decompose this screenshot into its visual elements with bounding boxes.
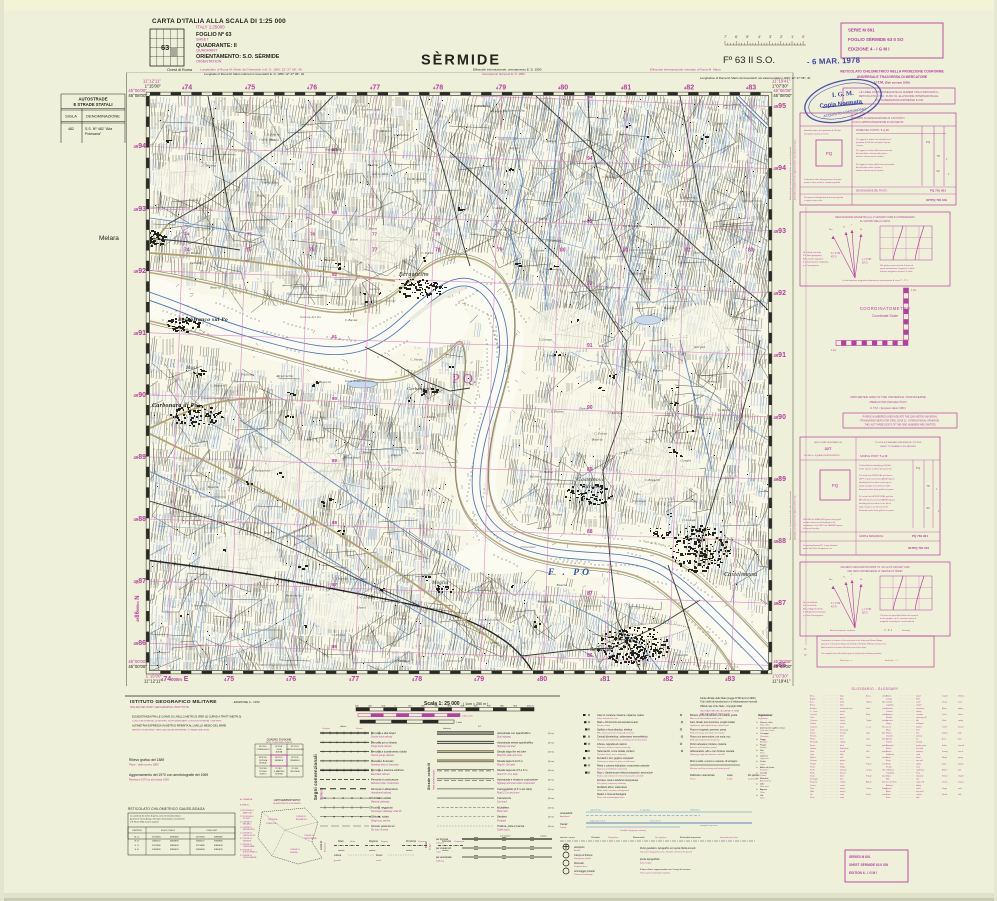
- svg-text:Chiesa: Chiesa: [866, 788, 872, 790]
- svg-text:481: 481: [600, 676, 610, 683]
- svg-text:lake: lake: [840, 754, 843, 756]
- svg-text:Teleferica stabile: Teleferica stabile: [371, 796, 392, 800]
- svg-text:Strada: Strada: [886, 765, 893, 768]
- svg-text:saw mill: saw mill: [916, 760, 923, 762]
- svg-text:CASTELMASSA: CASTELMASSA: [243, 856, 257, 859]
- svg-text:77: 77: [372, 232, 378, 237]
- svg-text:nazione magnetica annua è in d: nazione magnetica annua è in dimi-: [880, 270, 913, 273]
- svg-text:SERIES M 891: SERIES M 891: [849, 855, 871, 859]
- svg-text:field: field: [916, 699, 919, 701]
- svg-text:Abbeveratoio, abb.io con fonta: Abbeveratoio, abb.io con fontana, cascat…: [689, 750, 735, 753]
- svg-text:Water tanks; on tower; undergr: Water tanks; on tower; underground: [597, 789, 630, 792]
- svg-text:RUSCO: RUSCO: [260, 773, 267, 775]
- svg-text:90: 90: [332, 396, 338, 401]
- svg-text:Le coordinate dei vertici di q: Le coordinate dei vertici di questa cart…: [130, 815, 181, 818]
- svg-text:island: island: [840, 751, 845, 753]
- svg-text:Miniera, pozzo di petrolio e d: Miniera, pozzo di petrolio e di metano, …: [690, 714, 738, 717]
- svg-text:wharf: wharf: [916, 756, 921, 759]
- svg-text:2': 2': [780, 34, 783, 39]
- svg-text:C.Bassa: C.Bassa: [187, 251, 200, 255]
- svg-text:Carreggiabile (2,5 m ed oltre): Carreggiabile (2,5 m ed oltre): [497, 787, 532, 791]
- svg-text:Podere: Podere: [810, 762, 816, 765]
- svg-text:C.Longa: C.Longa: [633, 499, 646, 503]
- svg-text:482: 482: [684, 85, 694, 92]
- svg-text:2683428: 2683428: [196, 849, 205, 851]
- svg-text:Palude: Palude: [866, 776, 872, 778]
- svg-text:Argine: Argine: [810, 698, 815, 701]
- svg-text:78: 78: [926, 484, 930, 488]
- svg-text:4995: 4995: [774, 103, 787, 110]
- svg-text:Buca: Buca: [942, 739, 946, 741]
- svg-text:Palazzo: Palazzo: [810, 760, 817, 762]
- svg-text:Corte Alta: Corte Alta: [297, 534, 313, 538]
- svg-text:2683172: 2683172: [196, 841, 205, 843]
- svg-text:3) Leggere il valore della lin: 3) Leggere il valore della linea orizzon…: [856, 163, 895, 166]
- svg-text:Zona: Zona: [866, 739, 870, 741]
- svg-text:Aqueducts: Aqueducts: [559, 815, 570, 818]
- svg-text:Alveo: Alveo: [886, 790, 891, 793]
- svg-text:labelling the line either in t: labelling the line either in the left or: [859, 502, 891, 505]
- svg-text:Pozzo e sorgente; perenne, pre: Pozzo e sorgente; perenne, presa: [690, 728, 727, 731]
- svg-text:meno di 3 m.: meno di 3 m.: [650, 821, 661, 823]
- svg-text:✰: ✰: [756, 794, 758, 797]
- svg-text:(proiezione Gauss-Boaga, ellis: (proiezione Gauss-Boaga, ellissoide inte…: [130, 818, 185, 821]
- svg-text:INDEX TO ADJOINING SHEETS: INDEX TO ADJOINING SHEETS: [266, 741, 293, 744]
- svg-text:AND GRID CONVERGENCE AT CENTE: AND GRID CONVERGENCE AT CENTER OF SHEET: [847, 570, 903, 573]
- svg-text:Masonry wall dry masonry wa: Masonry wall dry masonry wall retaining …: [690, 767, 730, 770]
- svg-text:UNIVERSALE TRASVERSA DI MERCAT: UNIVERSALE TRASVERSA DI MERCATORE: [857, 75, 928, 79]
- svg-text:Identificazione del quadrato d: Identificazione del quadrato di 100 km: [804, 129, 841, 132]
- svg-text:FUSO EST: FUSO EST: [207, 830, 219, 832]
- svg-text:State: State: [350, 840, 356, 843]
- svg-text:Nr = Grid North: Nr = Grid North: [803, 601, 818, 604]
- svg-text:PQ: PQ: [916, 466, 921, 470]
- svg-text:Abbazia: Abbazia: [886, 784, 894, 787]
- svg-text:- EDIZIONE 4 - 1972: - EDIZIONE 4 - 1972: [232, 700, 260, 704]
- svg-text:del reticolato sotto il punto: del reticolato sotto il punto e: [856, 166, 883, 169]
- svg-text:4985678: 4985678: [170, 849, 179, 851]
- svg-text:N = True North: N = True North: [803, 604, 818, 607]
- svg-text:PROVINCIA: PROVINCIA: [268, 818, 278, 821]
- svg-text:farm: farm: [840, 713, 844, 716]
- svg-text:ITALY 1:25000: ITALY 1:25000: [196, 25, 225, 30]
- svg-text:Longitudine di Roma M. Mario d: Longitudine di Roma M. Mario da Greenwic…: [700, 76, 811, 80]
- svg-text:Segni convenzionali: Segni convenzionali: [313, 754, 318, 800]
- svg-text:C., Casa: C., Casa: [810, 711, 818, 713]
- svg-text:4994: 4994: [774, 165, 787, 172]
- svg-text:Nr = Nord reticolato: Nr = Nord reticolato: [803, 251, 822, 254]
- svg-text:Railroad under construction: Railroad under construction: [371, 782, 400, 785]
- svg-text:Punto geodetico, topografico c: Punto geodetico, topografico con quota r…: [640, 847, 696, 850]
- svg-text:Ponte: Ponte: [866, 793, 871, 796]
- svg-text:C.Longa: C.Longa: [682, 518, 695, 522]
- svg-text:1 km: 1 km: [911, 289, 916, 292]
- svg-text:Nel grafico sono tracciate le: Nel grafico sono tracciate le linee di: [880, 264, 913, 267]
- svg-text:87: 87: [587, 591, 593, 597]
- svg-text:table located in the lower lef: table located in the lower left hand cor…: [821, 646, 867, 649]
- svg-text:Gorghi: Gorghi: [680, 459, 691, 463]
- svg-text:C.Rossi: C.Rossi: [365, 226, 377, 230]
- svg-text:Roversella: Roversella: [536, 599, 554, 603]
- svg-text:F . PO: F . PO: [547, 568, 592, 578]
- svg-text:Watering trough with fountain;: Watering trough with fountain; waterfall: [690, 753, 725, 756]
- svg-text:poplar grove: poplar grove: [916, 744, 927, 747]
- svg-text:PQ 781 901: PQ 781 901: [930, 189, 946, 193]
- svg-text:confine: confine: [442, 850, 449, 852]
- svg-text:MELARA: MELARA: [243, 823, 251, 826]
- svg-text:Boaria: Boaria: [693, 393, 704, 397]
- svg-text:93: 93: [587, 219, 593, 225]
- svg-text:sand: sand: [958, 702, 962, 704]
- svg-text:- 6 MAR. 1978: - 6 MAR. 1978: [807, 56, 861, 67]
- svg-text:C.Bianchi: C.Bianchi: [315, 380, 331, 384]
- svg-text:90: 90: [926, 506, 930, 510]
- svg-text:P: P: [805, 653, 807, 657]
- svg-text:Faro, fanale; luce luminosa, s: Faro, fanale; luce luminosa, scoglio iso…: [690, 721, 736, 724]
- svg-text:hole: hole: [958, 794, 961, 796]
- svg-text:Service station: Service station: [597, 724, 611, 727]
- svg-text:4986: 4986: [134, 640, 147, 647]
- svg-text:Tranvia e funicolari: Tranvia e funicolari: [371, 759, 394, 763]
- svg-text:Limiti di:: Limiti di:: [319, 840, 323, 850]
- svg-text:Fruit trees: Fruit trees: [760, 768, 769, 771]
- svg-text:Estimate tenths from grid line: Estimate tenths from grid line to point:: [859, 509, 894, 512]
- svg-text:C.Bianchi: C.Bianchi: [470, 104, 486, 108]
- svg-text:si opera in piu carte:: si opera in piu carte:: [804, 199, 823, 202]
- svg-text:road: road: [840, 793, 844, 796]
- svg-text:Scalo: Scalo: [886, 757, 891, 759]
- svg-text:Viti: Viti: [760, 794, 764, 797]
- svg-text:45°08'00": 45°08'00": [128, 93, 147, 98]
- svg-text:GLOSSARIO - GLOSSARY: GLOSSARIO - GLOSSARY: [851, 687, 899, 691]
- svg-text:B VENETO: B VENETO: [240, 805, 250, 807]
- svg-text:476: 476: [286, 676, 296, 683]
- svg-text:Trascrivere nella designazione: Trascrivere nella designazione del punto: [804, 178, 842, 181]
- svg-text:1000 METER GRID IN THE UNIVERS: 1000 METER GRID IN THE UNIVERSAL TRANSVE…: [850, 395, 926, 399]
- svg-text:Dossi: Dossi: [256, 193, 266, 197]
- svg-text:Tenuta: Tenuta: [942, 781, 947, 784]
- svg-text:Muro a calle; a secco e macer: Muro a calle; a secco e macerie; di sost…: [690, 760, 738, 763]
- svg-text:C.Longa: C.Longa: [486, 641, 499, 645]
- svg-text:LEFT of point and read LARGE f: LEFT of point and read LARGE figures: [859, 478, 895, 481]
- svg-text:on the graphic, by 5'; eventua: on the graphic, by 5'; eventual series o…: [880, 617, 917, 620]
- svg-text:Boaria: Boaria: [694, 250, 705, 254]
- svg-text:γ = Grid Convergence: γ = Grid Convergence: [803, 614, 824, 617]
- svg-text:railroad: railroad: [436, 842, 444, 844]
- svg-text:rice field: rice field: [916, 747, 923, 750]
- svg-text:breach: breach: [958, 726, 964, 728]
- svg-text:75: 75: [246, 248, 252, 254]
- svg-text:Gorgo: Gorgo: [886, 722, 891, 725]
- svg-text:Corte Alta: Corte Alta: [584, 255, 600, 259]
- svg-text:477: 477: [370, 85, 380, 92]
- svg-text:Boaria: Boaria: [264, 530, 275, 534]
- svg-text:1000 yards: 1000 yards: [462, 715, 474, 718]
- svg-text:Rotta: Rotta: [942, 719, 946, 722]
- svg-text:Boaria: Boaria: [557, 583, 568, 587]
- svg-text:Chiesa, cappella ed oratorio: Chiesa, cappella ed oratorio: [597, 743, 627, 746]
- svg-text:RETICOLATO CHILOMETRICO GAUSS-: RETICOLATO CHILOMETRICO GAUSS-BOAGA: [128, 807, 206, 811]
- svg-text:45°00'00": 45°00'00": [773, 664, 792, 669]
- svg-text:N. 2: N. 2: [478, 726, 481, 728]
- svg-text:Corte: Corte: [942, 713, 946, 716]
- svg-text:DI MANTOVA: DI MANTOVA: [266, 822, 277, 825]
- svg-text:Filand: Filand: [942, 757, 947, 759]
- svg-text:Maso: Maso: [886, 729, 891, 731]
- svg-text:C.Bassa: C.Bassa: [359, 450, 372, 454]
- svg-text:U.T.M. ( European datum 19: U.T.M. ( European datum 1950 ): [870, 406, 906, 410]
- svg-text:7': 7': [724, 34, 727, 39]
- svg-text:Palizzata o staccionata: Palizzata o staccionata: [690, 774, 715, 777]
- svg-text:1683172: 1683172: [152, 841, 161, 843]
- svg-text:West fuse —─: West fuse —─: [840, 659, 853, 662]
- svg-text:Masi: Masi: [185, 366, 198, 371]
- svg-text:C.Longa: C.Longa: [543, 139, 556, 143]
- svg-text:81: 81: [623, 248, 629, 254]
- svg-text:coordinates. Use ONLY the LARG: coordinates. Use ONLY the LARGER figures: [803, 524, 843, 527]
- svg-text:a M. Mario 1940) sono le segue: a M. Mario 1940) sono le seguenti:: [130, 821, 160, 824]
- svg-text:projection, International Sphe: projection, International Spheroid orien…: [821, 643, 886, 646]
- svg-text:canal: canal: [916, 702, 921, 704]
- svg-text:Trattura, pista e traccia: Trattura, pista e traccia: [497, 824, 525, 828]
- svg-text:Aeroporto: Aeroporto: [573, 846, 585, 849]
- svg-text:road: road: [958, 788, 962, 790]
- svg-text:C.Molino: C.Molino: [608, 411, 623, 415]
- svg-text:interrato e sosp.to: interrato e sosp.to: [560, 836, 575, 839]
- svg-text:SHEET SÈRMIDE 63 II SW: SHEET SÈRMIDE 63 II SW: [849, 862, 888, 867]
- svg-text:Sentiero: Sentiero: [497, 815, 508, 819]
- svg-text:filo spinato: filo spinato: [748, 774, 760, 777]
- svg-text:customs: customs: [916, 713, 923, 716]
- svg-text:3': 3': [769, 34, 772, 39]
- svg-text:Ferrovia ad un binario: Ferrovia ad un binario: [371, 740, 398, 744]
- svg-text:Fornace, cava e teleferica tem: Fornace, cava e teleferica temporanea: [597, 779, 639, 782]
- svg-text:Ca Bruciata: Ca Bruciata: [407, 177, 426, 181]
- svg-text:C.Grande: C.Grande: [333, 576, 348, 580]
- svg-text:Traghetto: Traghetto: [886, 772, 894, 775]
- svg-text:prefix Grid Zone Designation,: prefix Grid Zone Designation, as:: [803, 547, 833, 550]
- svg-text:Farm; barrack; hut; ruin: Farm; barrack; hut; ruin: [597, 717, 619, 720]
- svg-text:Boaria: Boaria: [592, 437, 603, 441]
- svg-text:DESIGNAZIONE DEL PUNTO :: DESIGNAZIONE DEL PUNTO :: [856, 190, 889, 193]
- svg-text:SAMPLE POINT: T. q 13: SAMPLE POINT: T. q 13: [860, 455, 888, 458]
- svg-text:villa: villa: [882, 769, 885, 771]
- svg-text:Well and spring; perennial wat: Well and spring; perennial water intake: [690, 731, 725, 734]
- svg-text:AL CENTRO DELLA CARTA: AL CENTRO DELLA CARTA: [860, 220, 891, 223]
- svg-text:Longitudine di Roma M. Mario d: Longitudine di Roma M. Mario da Greenwic…: [200, 68, 302, 72]
- svg-text:4988: 4988: [134, 516, 147, 523]
- svg-text:Valletta: Valletta: [242, 372, 254, 376]
- svg-text:1°07'30": 1°07'30": [772, 84, 789, 89]
- svg-text:Risaia: Risaia: [942, 702, 947, 704]
- svg-text:Canali: Canali: [560, 822, 568, 826]
- svg-text:Canals: Canals: [560, 827, 566, 829]
- svg-text:Corte Alta: Corte Alta: [509, 109, 525, 113]
- svg-text:Zuccherificio: Zuccherificio: [886, 781, 897, 784]
- svg-text:nel quale il punto si trova:: nel quale il punto si trova:: [804, 133, 829, 136]
- svg-text:83: 83: [748, 248, 754, 254]
- svg-text:Beeches: Beeches: [760, 741, 767, 743]
- svg-text:475: 475: [224, 676, 234, 683]
- svg-text:Official map of the State - Co: Official map of the State - Copyright IG…: [700, 705, 742, 708]
- svg-text:Ca Bruciata: Ca Bruciata: [623, 224, 642, 228]
- svg-text:hole: hole: [916, 797, 920, 799]
- svg-text:28",5: 28",5: [862, 262, 868, 265]
- svg-text:spinning mill: spinning mill: [916, 717, 927, 719]
- svg-text:C.Nuova: C.Nuova: [388, 468, 401, 472]
- svg-text:Road 8m wide and more: Road 8m wide and more: [497, 755, 523, 757]
- svg-text:Funivia, seggiovia: Funivia, seggiovia: [371, 805, 393, 809]
- svg-text:ADMINISTRATIVE BOUNDARIES: ADMINISTRATIVE BOUNDARIES: [273, 802, 301, 805]
- svg-text:Gorghi: Gorghi: [369, 287, 380, 291]
- svg-text:63: 63: [161, 43, 169, 52]
- svg-text:C.Grande: C.Grande: [340, 406, 355, 410]
- svg-text:per ferrovia: per ferrovia: [435, 838, 449, 841]
- svg-text:4985678: 4985678: [214, 849, 223, 851]
- svg-text:Highway and road under constru: Highway and road under construction: [497, 782, 536, 785]
- svg-text:water: water: [916, 787, 921, 790]
- svg-text:Valletta: Valletta: [529, 475, 541, 479]
- svg-text:PURPLE NUMBERED LINES INDICATE: PURPLE NUMBERED LINES INDICATE THE 1000 …: [863, 416, 938, 419]
- svg-text:2) Leggere il valore della lin: 2) Leggere il valore della linea vertica…: [856, 149, 893, 152]
- svg-text:32TPQ 781 901: 32TPQ 781 901: [926, 198, 948, 202]
- svg-text:1': 1': [791, 34, 794, 39]
- svg-text:Corte Alta: Corte Alta: [259, 137, 275, 141]
- svg-text:Declination protractor for the: Declination protractor for the alignment…: [794, 140, 797, 200]
- svg-text:EQUIDISTANZA FRA LE CURVE DI L: EQUIDISTANZA FRA LE CURVE DI LIVELLO MET…: [132, 715, 241, 719]
- svg-text:✰: ✰: [756, 727, 758, 730]
- svg-text:Fiume: Fiume: [810, 739, 815, 741]
- svg-text:3) Locate first HORIZONTAL gri: 3) Locate first HORIZONTAL grid line: [859, 495, 894, 498]
- svg-text:✰: ✰: [756, 732, 758, 735]
- svg-text:larghi almeno 3 m.: larghi almeno 3 m.: [590, 821, 606, 823]
- svg-text:C.Grande: C.Grande: [360, 596, 375, 600]
- svg-text:Palazzina: Palazzina: [546, 238, 562, 242]
- svg-text:Traghe: Traghe: [866, 720, 872, 722]
- svg-text:86: 86: [587, 653, 593, 659]
- svg-text:TRANSVERSE MERCATOR GRID, ZONE: TRANSVERSE MERCATOR GRID, ZONE 32 , INTE…: [860, 420, 940, 423]
- svg-text:1) Leggere le lettere che iden: 1) Leggere le lettere che identificano i…: [856, 138, 892, 141]
- svg-text:N. E.: N. E.: [135, 841, 140, 843]
- svg-text:Cork oaks; ilexes: Cork oaks; ilexes: [760, 730, 774, 732]
- svg-text:C.Nuova: C.Nuova: [203, 163, 216, 167]
- svg-text:Campo: Campo: [886, 699, 892, 701]
- svg-text:Corte Alta: Corte Alta: [350, 577, 366, 581]
- svg-text:Scolo: Scolo: [810, 776, 815, 778]
- svg-text:C.Molino: C.Molino: [377, 129, 392, 133]
- svg-text:LE LINEE CONTRASSEGNATE DA NUM: LE LINEE CONTRASSEGNATE DA NUMERI VIOLA …: [859, 90, 939, 94]
- svg-text:4985403: 4985403: [214, 845, 223, 847]
- svg-text:CARBONARA: CARBONARA: [243, 845, 255, 848]
- svg-text:Palazzina: Palazzina: [343, 455, 359, 459]
- svg-text:FOGLIO SÈRMIDE 63 II SO: FOGLIO SÈRMIDE 63 II SO: [848, 37, 904, 42]
- svg-text:Reticolato per l'orientamento: Reticolato per l'orientamento della cart…: [789, 146, 792, 200]
- svg-text:house: house: [958, 714, 963, 716]
- svg-text:U.T.M. (Dati europei 1950): U.T.M. (Dati europei 1950): [874, 81, 910, 85]
- svg-text:C.Nuova: C.Nuova: [186, 444, 199, 448]
- svg-text:La declinazione magnetica dimi: La declinazione magnetica diminuisce ann…: [842, 279, 908, 282]
- svg-text:lake: lake: [882, 702, 885, 704]
- svg-text:78: 78: [936, 154, 940, 158]
- svg-text:Oil pipelines: Oil pipelines: [608, 837, 618, 839]
- svg-text:Narrow gauge railroad: Narrow gauge railroad: [371, 755, 394, 757]
- svg-text:lock: lock: [840, 779, 843, 781]
- svg-text:C.Bassa: C.Bassa: [345, 318, 358, 322]
- svg-text:Tenuta: Tenuta: [707, 380, 717, 384]
- svg-text:Fumaioli o torri; guglia e cam: Fumaioli o torri; guglia e campanili: [597, 757, 634, 760]
- svg-text:Tutti i diritti di riproduzion: Tutti i diritti di riproduzione e di rie…: [700, 701, 758, 704]
- svg-text:474000m E: 474000m E: [161, 676, 189, 683]
- svg-text:Sega: Sega: [942, 763, 946, 765]
- svg-text:Provincia: Provincia: [406, 840, 417, 843]
- svg-text:CON L'APPROSSIMAZIONE DI 100 M: CON L'APPROSSIMAZIONE DI 100 METRI: [853, 120, 904, 124]
- svg-text:Gas pipelines: Gas pipelines: [655, 837, 667, 839]
- svg-text:SERIE M 891: SERIE M 891: [848, 28, 875, 33]
- svg-text:Cappel: Cappel: [942, 696, 948, 698]
- svg-text:ferry: ferry: [916, 772, 920, 775]
- svg-text:If reporting beyond 18° in any: If reporting beyond 18° in any direction…: [803, 544, 838, 547]
- svg-text:C.Nuova: C.Nuova: [602, 175, 615, 179]
- svg-text:Roversella: Roversella: [285, 594, 303, 598]
- svg-text:Spots heights: Spots heights: [640, 862, 652, 865]
- svg-text:C.Molino: C.Molino: [628, 272, 643, 276]
- svg-text:colony: colony: [916, 711, 922, 713]
- svg-text:prima le cifre scritte in cara: prima le cifre scritte in carattere gran…: [804, 181, 841, 184]
- svg-text:✰: ✰: [756, 749, 758, 752]
- svg-text:Fontanile: Fontanile: [810, 741, 818, 744]
- svg-text:Oratorio: Oratorio: [886, 735, 893, 738]
- svg-text:Vegetation: Vegetation: [758, 717, 768, 720]
- svg-text:C.Bianchi: C.Bianchi: [210, 384, 226, 388]
- svg-text:1673586: 1673586: [152, 845, 161, 847]
- svg-text:Nm = Nord magnetico: Nm = Nord magnetico: [803, 257, 824, 260]
- svg-text:Valletta: Valletta: [716, 122, 728, 126]
- svg-text:*: *: [851, 223, 852, 227]
- svg-text:Gorghi: Gorghi: [677, 653, 688, 657]
- svg-text:Christian shrine; cross; cemet: Christian shrine; cross; cemetery: [597, 753, 627, 756]
- svg-text:Pines: Pines: [760, 753, 765, 755]
- svg-text:del reticolato a sinistra del: del reticolato a sinistra del punto e: [856, 152, 888, 155]
- svg-text:growth: growth: [334, 859, 341, 862]
- svg-text:Almond-trees: Almond-trees: [759, 780, 771, 783]
- svg-text:sand: sand: [916, 754, 920, 756]
- svg-text:Campo di fortuna: Campo di fortuna: [574, 854, 593, 857]
- svg-text:Borgofranco sul Po: Borgofranco sul Po: [177, 317, 228, 323]
- svg-text:Cart track: Cart track: [497, 801, 508, 804]
- svg-text:Acqua: Acqua: [886, 787, 892, 790]
- svg-text:Cattle tracks: Cattle tracks: [497, 829, 511, 832]
- svg-text:BORGOFRANCO: BORGOFRANCO: [243, 851, 258, 854]
- svg-text:Nm: Nm: [829, 579, 833, 581]
- svg-text:4992: 4992: [134, 268, 147, 275]
- svg-text:palace: palace: [840, 760, 846, 762]
- svg-text:Canale: Canale: [886, 702, 892, 704]
- svg-text:Moglia: Moglia: [431, 581, 448, 586]
- svg-text:right margin or on the line it: right margin or on the line itself:: [859, 506, 888, 509]
- svg-text:Stab.to rifornimento ed assist: Stab.to rifornimento ed assistenza auto: [597, 721, 639, 724]
- svg-text:6': 6': [735, 34, 738, 39]
- svg-text:Sostegno: Sostegno: [810, 778, 818, 781]
- svg-text:Corte: Corte: [810, 728, 815, 731]
- svg-text:ROVIGO: ROVIGO: [243, 818, 251, 820]
- svg-text:Pozzo con aeromotore; con nori: Pozzo con aeromotore; con noria; ecc.: [690, 736, 731, 739]
- svg-text:93: 93: [332, 210, 338, 215]
- svg-text:OSTIGLIA: OSTIGLIA: [259, 759, 268, 762]
- svg-text:IGNORE the SMALLER figures of: IGNORE the SMALLER figures of any grid: [803, 518, 841, 521]
- svg-text:Mulino: Mulino: [886, 732, 892, 734]
- svg-text:89: 89: [332, 458, 338, 463]
- svg-text:Tenuta: Tenuta: [810, 784, 817, 787]
